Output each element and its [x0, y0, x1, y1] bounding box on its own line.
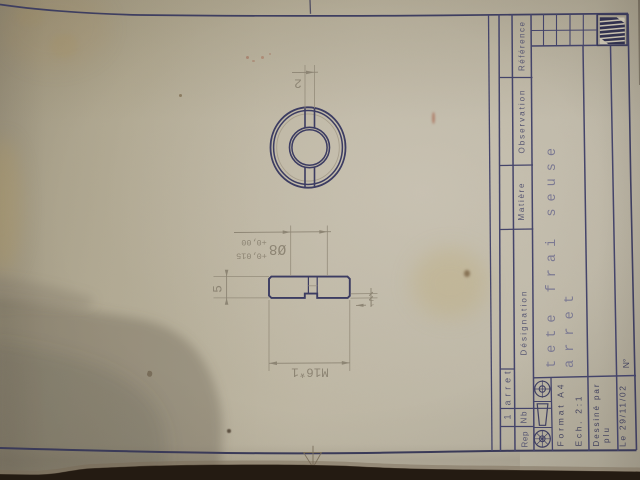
- svg-text:1: 1: [503, 414, 513, 419]
- svg-text:2: 2: [294, 76, 302, 91]
- svg-text:Ø8: Ø8: [269, 240, 286, 256]
- svg-text:M16*1: M16*1: [291, 364, 329, 378]
- svg-text:5: 5: [210, 285, 225, 293]
- svg-text:1: 1: [369, 297, 374, 307]
- svg-text:Référence: Référence: [518, 21, 527, 71]
- svg-text:+0,015: +0,015: [236, 251, 267, 261]
- svg-text:Dessiné par: Dessiné par: [592, 384, 601, 446]
- svg-text:Observation: Observation: [518, 91, 527, 154]
- svg-text:Matière: Matière: [517, 183, 526, 221]
- svg-text:Ech. 2:1: Ech. 2:1: [574, 396, 584, 446]
- svg-text:arret: arret: [503, 371, 513, 405]
- svg-text:Désignation: Désignation: [520, 292, 529, 356]
- svg-text:Le 29/11/02: Le 29/11/02: [618, 386, 628, 447]
- svg-text:plu: plu: [602, 428, 611, 443]
- svg-text:Rep: Rep: [521, 431, 530, 448]
- svg-text:N°: N°: [621, 359, 631, 369]
- svg-text:+0,00: +0,00: [241, 237, 267, 247]
- svg-text:tete frai seuse: tete frai seuse: [545, 148, 560, 368]
- svg-text:Nb: Nb: [520, 411, 529, 424]
- svg-text:Format A4: Format A4: [556, 384, 566, 446]
- svg-text:arret: arret: [563, 295, 578, 368]
